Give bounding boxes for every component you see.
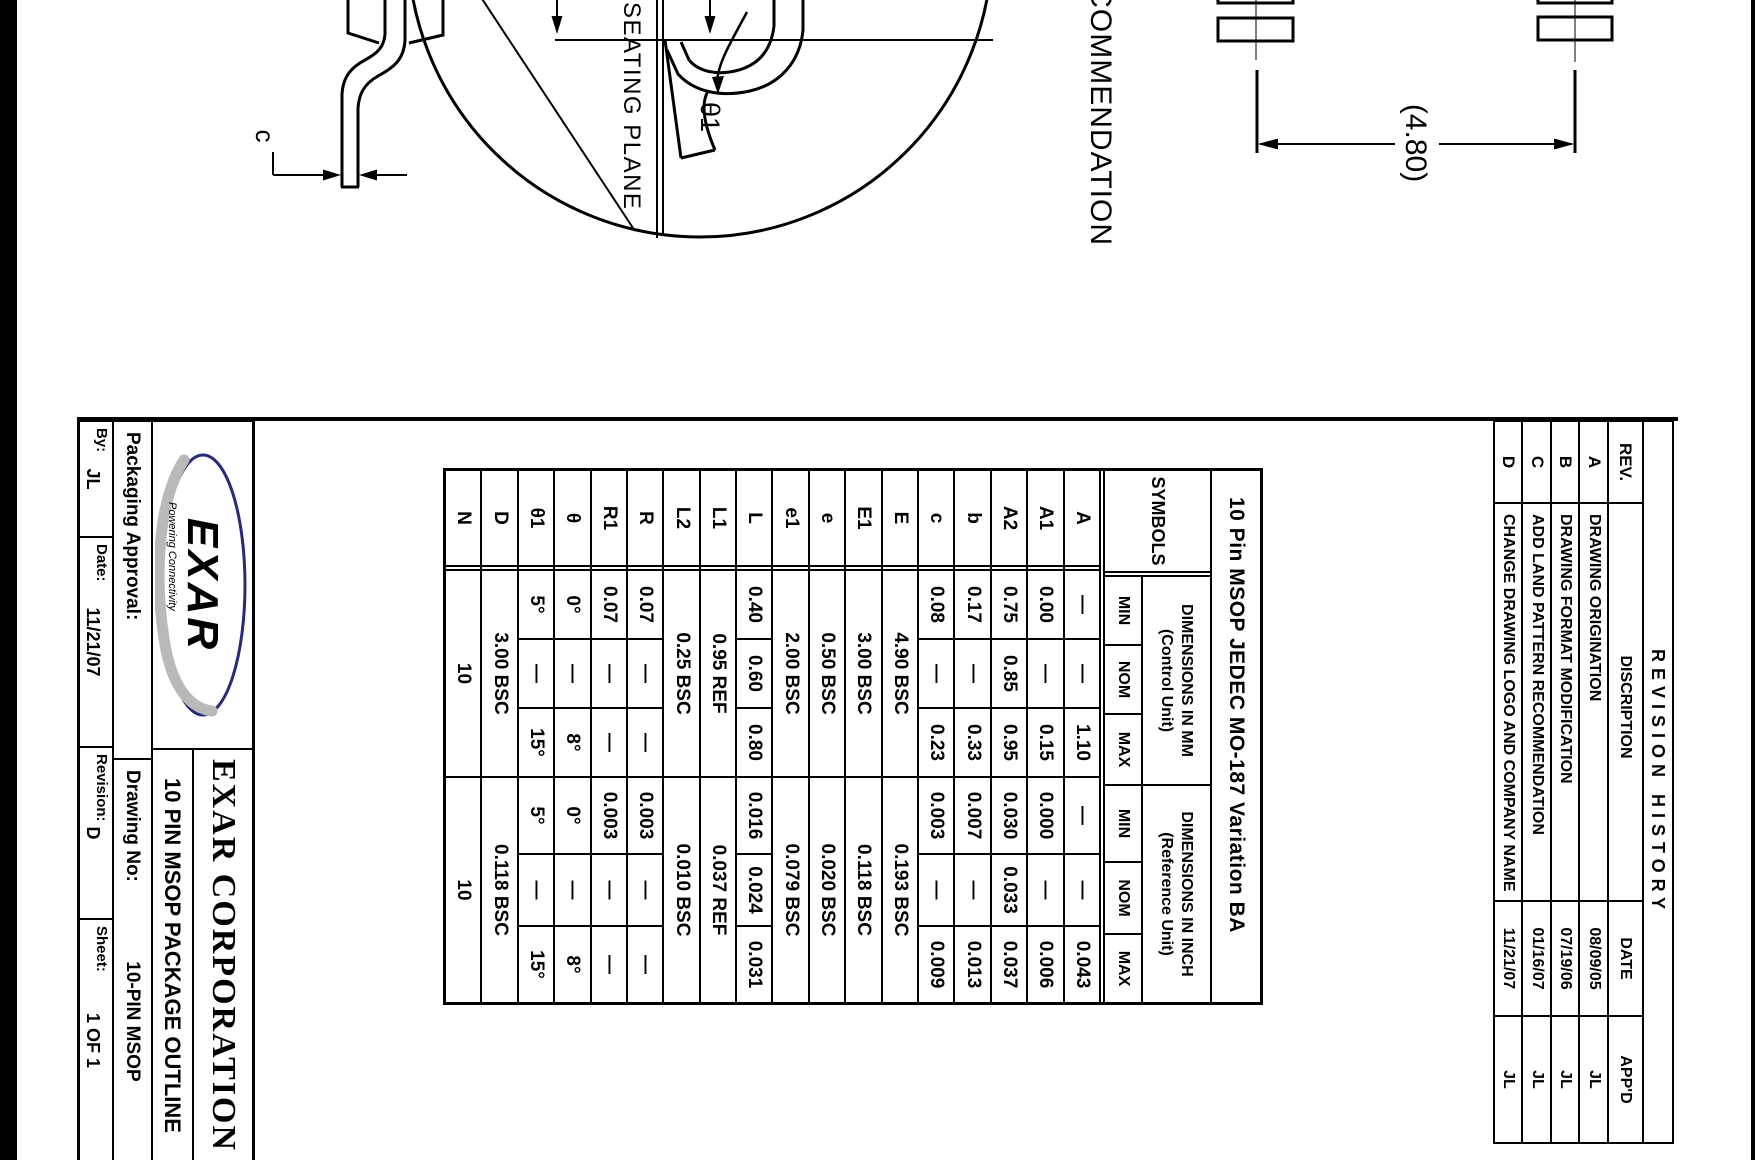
dimension-symbol: R1: [592, 471, 626, 571]
dim-arrow-up-icon: [323, 170, 341, 181]
mm-max-value: 1.10: [1065, 709, 1099, 778]
dimension-row: E4.90 BSC0.193 BSC: [881, 471, 917, 1002]
exar-logo-icon: EXAR Powering Connectivity: [155, 430, 250, 740]
dimension-symbol: R: [628, 471, 662, 571]
inch-nom-header: NOM: [1105, 863, 1141, 935]
mm-min-value: 0.08: [919, 571, 953, 640]
mm-merged-value: 0.50 BSC: [810, 571, 844, 778]
dim-arrow-up-icon: [1554, 139, 1574, 150]
mm-max-value: 0.80: [737, 709, 771, 778]
inch-merged-value: 10: [446, 778, 480, 1002]
mm-nom-value: —: [628, 640, 662, 709]
dimension-row: L10.95 REF0.037 REF: [699, 471, 735, 1002]
inch-header-group: DIMENSIONS IN INCH (Reference Unit) MIN …: [1105, 786, 1210, 1002]
inch-min-value: 0.003: [628, 778, 662, 855]
inch-min-value: 0.000: [1028, 778, 1062, 855]
dimension-row: A20.750.850.950.0300.0330.037: [990, 471, 1026, 1002]
revision-date: 11/21/07: [1495, 902, 1522, 1017]
dim-arrow-down-icon: [1258, 139, 1278, 150]
revision-row: DCHANGE DRAWING LOGO AND COMPANY NAME11/…: [1495, 422, 1522, 1142]
dimension-symbol: b: [955, 471, 989, 571]
mm-subheader: (Control Unit): [1157, 629, 1177, 732]
drawing-title: 10 PIN MSOP PACKAGE OUTLINE: [153, 750, 192, 1160]
mm-min-value: 0°: [555, 571, 589, 640]
dimension-row: R10.07——0.003——: [590, 471, 626, 1002]
mm-merged-value: 0.25 BSC: [664, 571, 698, 778]
inch-nom-value: —: [592, 855, 626, 927]
revision-row: ADRAWING ORIGINATION08/09/05JL: [1579, 422, 1608, 1142]
dimension-symbol: A2: [992, 471, 1026, 571]
revision-letter: A: [1581, 422, 1608, 504]
dimension-symbol: A: [1065, 471, 1099, 571]
description-col-header: DISCRIPTION: [1609, 504, 1642, 902]
mm-header-group: DIMENSIONS IN MM (Control Unit) MIN NOM …: [1105, 577, 1210, 786]
mm-min-header: MIN: [1105, 577, 1141, 646]
by-label: By:: [93, 428, 110, 452]
inch-max-value: —: [628, 927, 662, 1002]
c-dim-label: c: [250, 130, 280, 143]
inch-max-value: 0.031: [737, 927, 771, 1002]
sheet-label: Sheet:: [93, 926, 110, 972]
mm-nom-value: —: [955, 640, 989, 709]
land-pattern-dim-label: (4.80): [1399, 104, 1432, 182]
revision-date: 07/19/06: [1552, 902, 1579, 1017]
mm-min-value: —: [1065, 571, 1099, 640]
dimension-symbol: e: [810, 471, 844, 571]
inch-merged-value: 0.193 BSC: [883, 778, 917, 1002]
appd-col-header: APP'D: [1609, 1017, 1642, 1142]
mm-nom-value: —: [1028, 640, 1062, 709]
dimension-row: θ15°—15°5°—15°: [517, 471, 553, 1002]
scanned-page-viewport: (4.80) LAND PATTERN RECOMMENDATION SEATI…: [0, 0, 1755, 1160]
dimension-row: N1010: [446, 471, 480, 1002]
mm-min-value: 0.17: [955, 571, 989, 640]
dimension-symbol: e1: [773, 471, 807, 571]
land-pattern-title: LAND PATTERN RECOMMENDATION: [1084, 0, 1117, 246]
revision-approver: JL: [1495, 1017, 1522, 1142]
revision-letter: D: [1495, 422, 1522, 504]
revision-description: CHANGE DRAWING LOGO AND COMPANY NAME: [1495, 504, 1522, 902]
mm-nom-value: —: [1065, 640, 1099, 709]
inch-merged-value: 0.079 BSC: [773, 778, 807, 1002]
mm-nom-header: NOM: [1105, 646, 1141, 715]
dimension-symbol: θ1: [519, 471, 553, 571]
revision-description: DRAWING ORIGINATION: [1581, 504, 1608, 902]
revision-approver: JL: [1552, 1017, 1579, 1142]
dimensions-table-title: 10 Pin MSOP JEDEC MO-187 Variation BA: [1210, 471, 1260, 1002]
dimensions-table-header: SYMBOLS DIMENSIONS IN MM (Control Unit) …: [1099, 471, 1210, 1002]
packaging-approval-label: Packaging Approval:: [114, 422, 151, 760]
dimension-row: L20.25 BSC0.010 BSC: [662, 471, 698, 1002]
dim-arrow-down-icon: [359, 170, 377, 181]
inch-min-value: 0.003: [592, 778, 626, 855]
inch-max-value: 8°: [555, 927, 589, 1002]
mm-max-header: MAX: [1105, 715, 1141, 784]
datasheet-sheet: (4.80) LAND PATTERN RECOMMENDATION SEATI…: [0, 0, 1755, 1160]
mm-max-value: 15°: [519, 709, 553, 778]
revision-description: ADD LAND PATTERN RECOMMENDATION: [1524, 504, 1551, 902]
dimension-row: D3.00 BSC0.118 BSC: [480, 471, 516, 1002]
mm-min-value: 0.00: [1028, 571, 1062, 640]
dimension-symbol: θ: [555, 471, 589, 571]
revision-history-table: REVISION HISTORY REV. DISCRIPTION DATE A…: [1493, 420, 1674, 1144]
dimension-symbol: L: [737, 471, 771, 571]
inch-min-value: 0.007: [955, 778, 989, 855]
mm-merged-value: 4.90 BSC: [883, 571, 917, 778]
drawing-no-value: 10-PIN MSOP: [122, 882, 144, 1160]
dimension-row: E13.00 BSC0.118 BSC: [844, 471, 880, 1002]
dimension-symbol: E1: [846, 471, 880, 571]
inch-subheader: (Reference Unit): [1157, 832, 1177, 956]
dimensions-table: 10 Pin MSOP JEDEC MO-187 Variation BA SY…: [443, 468, 1263, 1005]
revision-date: 08/09/05: [1581, 902, 1608, 1017]
exar-logo-wordmark: EXAR: [178, 518, 227, 652]
inch-merged-value: 0.118 BSC: [482, 778, 516, 1002]
inch-nom-value: —: [955, 855, 989, 927]
frame-divider-line: [77, 417, 1678, 421]
inch-min-value: 0°: [555, 778, 589, 855]
inch-max-value: 0.043: [1065, 927, 1099, 1002]
inch-merged-value: 0.037 REF: [701, 778, 735, 1002]
mm-merged-value: 10: [446, 571, 480, 778]
inch-max-value: 0.009: [919, 927, 953, 1002]
mm-nom-value: 0.85: [992, 640, 1026, 709]
dimension-symbol: L1: [701, 471, 735, 571]
dimension-row: R0.07——0.003——: [626, 471, 662, 1002]
mm-min-value: 0.40: [737, 571, 771, 640]
revision-row: BDRAWING FORMAT MODIFICATION07/19/06JL: [1550, 422, 1579, 1142]
dimension-row: e0.50 BSC0.020 BSC: [808, 471, 844, 1002]
company-name: EXAR CORPORATION: [192, 750, 252, 1160]
revision-history-title: REVISION HISTORY: [1642, 422, 1672, 1142]
dimension-row: b0.17—0.330.007—0.013: [953, 471, 989, 1002]
dimension-row: A10.00—0.150.000—0.006: [1026, 471, 1062, 1002]
mm-max-value: 0.15: [1028, 709, 1062, 778]
dim-arrow-right-icon: [552, 16, 563, 34]
inch-nom-value: 0.033: [992, 855, 1026, 927]
dimension-row: L0.400.600.800.0160.0240.031: [735, 471, 771, 1002]
drawing-no-label: Drawing No:: [122, 760, 144, 882]
mm-nom-value: —: [592, 640, 626, 709]
sheet-cell: Sheet: 1 OF 1: [80, 920, 112, 1160]
dimension-symbol: A1: [1028, 471, 1062, 571]
dimension-row: A——1.10——0.043: [1063, 471, 1099, 1002]
inch-max-value: 0.006: [1028, 927, 1062, 1002]
mm-max-value: —: [628, 709, 662, 778]
mm-min-value: 0.07: [592, 571, 626, 640]
land-pattern-drawing: (4.80) LAND PATTERN RECOMMENDATION: [1084, 0, 1612, 246]
dimension-symbol: D: [482, 471, 516, 571]
exar-logo: EXAR Powering Connectivity: [153, 422, 252, 750]
revision-description: DRAWING FORMAT MODIFICATION: [1552, 504, 1579, 902]
inch-nom-value: —: [628, 855, 662, 927]
mm-max-value: 8°: [555, 709, 589, 778]
date-label: Date:: [93, 544, 110, 582]
inch-min-value: 5°: [519, 778, 553, 855]
inch-merged-value: 0.118 BSC: [846, 778, 880, 1002]
inch-min-value: 0.016: [737, 778, 771, 855]
revision-date: 01/16/07: [1524, 902, 1551, 1017]
seating-plane-label: SEATING PLANE: [618, 2, 645, 210]
dimension-symbol: N: [446, 471, 480, 571]
revision-row: CADD LAND PATTERN RECOMMENDATION01/16/07…: [1522, 422, 1551, 1142]
mm-header: DIMENSIONS IN MM: [1177, 604, 1197, 757]
mm-max-value: 0.95: [992, 709, 1026, 778]
inch-min-value: 0.003: [919, 778, 953, 855]
revision-approver: JL: [1581, 1017, 1608, 1142]
revision-history-header: REV. DISCRIPTION DATE APP'D: [1607, 422, 1642, 1142]
inch-max-value: —: [592, 927, 626, 1002]
mm-nom-value: 0.60: [737, 640, 771, 709]
inch-nom-value: —: [919, 855, 953, 927]
inch-nom-value: —: [1028, 855, 1062, 927]
inch-max-header: MAX: [1105, 935, 1141, 1002]
mm-nom-value: —: [919, 640, 953, 709]
symbols-header: SYMBOLS: [1105, 471, 1210, 577]
inch-max-value: 0.037: [992, 927, 1026, 1002]
date-col-header: DATE: [1609, 902, 1642, 1017]
dimension-symbol: E: [883, 471, 917, 571]
mm-max-value: —: [592, 709, 626, 778]
dim-arrow-right-icon: [705, 16, 716, 34]
inch-nom-value: 0.024: [737, 855, 771, 927]
inch-min-header: MIN: [1105, 786, 1141, 863]
inch-merged-value: 0.010 BSC: [664, 778, 698, 1002]
mm-max-value: 0.23: [919, 709, 953, 778]
detail-circle-drawing: SEATING PLANE θ1: [408, 0, 993, 238]
date-cell: Date: 11/21/07: [80, 538, 112, 748]
mm-nom-value: —: [555, 640, 589, 709]
dimension-row: e12.00 BSC0.079 BSC: [771, 471, 807, 1002]
mm-merged-value: 3.00 BSC: [846, 571, 880, 778]
package-side-view: c: [250, 0, 443, 187]
inch-max-value: 0.013: [955, 927, 989, 1002]
rev-col-header: REV.: [1609, 422, 1642, 504]
dimension-row: c0.08—0.230.003—0.009: [917, 471, 953, 1002]
page-edge-black-bar: [0, 0, 17, 1160]
inch-max-value: 15°: [519, 927, 553, 1002]
mm-min-value: 0.75: [992, 571, 1026, 640]
by-cell: By: JL: [80, 422, 112, 538]
dimension-row: θ0°—8°0°—8°: [553, 471, 589, 1002]
theta1-label: θ1: [695, 102, 725, 132]
mm-max-value: 0.33: [955, 709, 989, 778]
drawing-no-cell: Drawing No: 10-PIN MSOP: [114, 760, 151, 1160]
mm-merged-value: 3.00 BSC: [482, 571, 516, 778]
mm-min-value: 0.07: [628, 571, 662, 640]
inch-header: DIMENSIONS IN INCH: [1177, 811, 1197, 976]
revision-letter: B: [1552, 422, 1579, 504]
revision-approver: JL: [1524, 1017, 1551, 1142]
revision-label: Revision:: [93, 754, 110, 822]
dimension-symbol: L2: [664, 471, 698, 571]
inch-merged-value: 0.020 BSC: [810, 778, 844, 1002]
inch-nom-value: —: [1065, 855, 1099, 927]
revision-history-rows: ADRAWING ORIGINATION08/09/05JLBDRAWING F…: [1495, 422, 1607, 1142]
mm-min-value: 5°: [519, 571, 553, 640]
dimension-symbol: c: [919, 471, 953, 571]
mm-merged-value: 0.95 REF: [701, 571, 735, 778]
exar-logo-tagline: Powering Connectivity: [166, 502, 178, 612]
revision-cell: Revision: D: [80, 748, 112, 920]
mm-merged-value: 2.00 BSC: [773, 571, 807, 778]
title-block: EXAR Powering Connectivity EXAR CORPORAT…: [77, 419, 255, 1160]
dimensions-table-rows: A——1.10——0.043A10.00—0.150.000—0.006A20.…: [446, 471, 1099, 1002]
inch-min-value: 0.030: [992, 778, 1026, 855]
inch-nom-value: —: [519, 855, 553, 927]
frame-bottom-border: [1751, 0, 1755, 1160]
inch-nom-value: —: [555, 855, 589, 927]
mm-nom-value: —: [519, 640, 553, 709]
revision-letter: C: [1524, 422, 1551, 504]
inch-min-value: —: [1065, 778, 1099, 855]
